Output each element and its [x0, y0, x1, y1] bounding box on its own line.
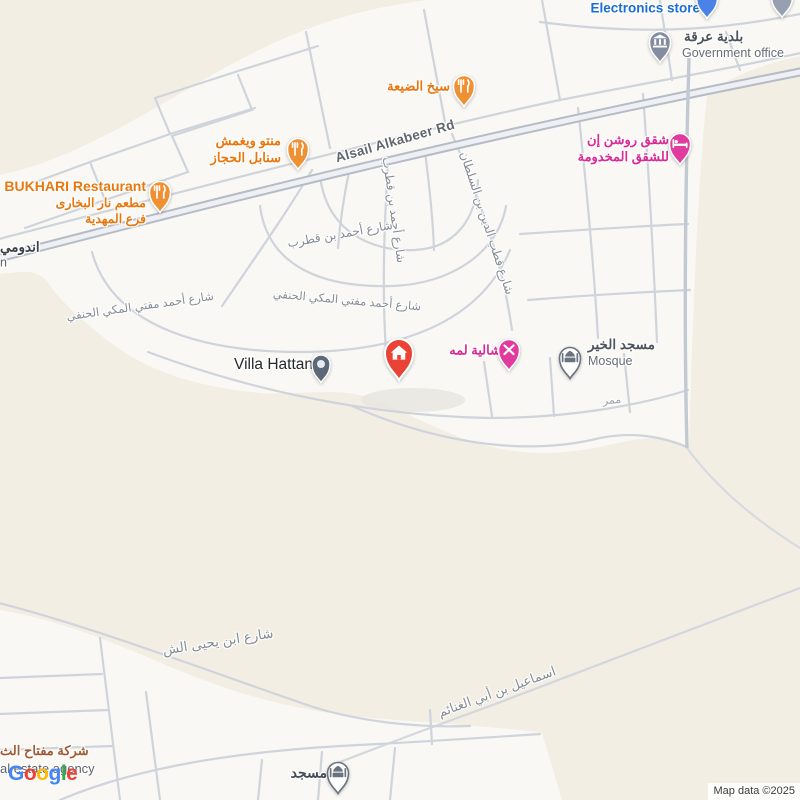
google-logo-letter: G — [8, 762, 24, 786]
google-logo-letter: o — [36, 762, 48, 786]
poi-label-villa-hattan[interactable]: Villa Hattan — [234, 356, 313, 374]
restaurant-pin-manto[interactable] — [283, 134, 313, 172]
google-logo-letter: g — [49, 762, 61, 786]
mosque-pin-khair[interactable] — [555, 343, 585, 381]
government-pin[interactable] — [645, 27, 675, 65]
road-label-mamarr: ممر — [602, 393, 621, 407]
poi-label-mosque-khair-subtitle: Mosque — [588, 353, 632, 369]
map-canvas[interactable]: Alsail Alkabeer Rd شارع أحمد بن قطرب شار… — [0, 0, 800, 800]
map-attribution: Map data ©2025 — [708, 783, 800, 800]
poi-label-manto[interactable]: منتو ويغمش سنابل الحجاز — [211, 132, 281, 166]
cutoff-gray-pin[interactable] — [767, 0, 797, 20]
poi-label-andomi-name: اندومي — [0, 240, 40, 256]
poi-label-bukhari-name: BUKHARI Restaurant — [4, 177, 146, 195]
poi-label-roshan-line2: للشقق المخدومة — [578, 148, 669, 165]
map-terrain — [0, 0, 800, 800]
restaurant-pin-bukhari[interactable] — [145, 177, 175, 215]
poi-label-manto-line2: سنابل الحجاز — [211, 149, 281, 166]
poi-label-roshan-line1: شقق روشن إن — [578, 131, 669, 148]
poi-label-manto-line1: منتو ويغمش — [211, 132, 281, 149]
poi-label-bukhari-line2: فرع المهدية — [4, 211, 146, 227]
restaurant-pin-sikh[interactable] — [449, 71, 479, 109]
google-logo: Google — [8, 762, 77, 786]
google-logo-letter: o — [24, 762, 36, 786]
lodging-pin-roshan[interactable] — [665, 129, 695, 167]
poi-label-sikh-aldiaa[interactable]: سيخ الضيعة — [387, 78, 450, 95]
activity-pin-shaliya[interactable] — [494, 335, 524, 373]
red-property-pin[interactable] — [380, 335, 418, 383]
poi-label-mosque-khair-name[interactable]: مسجد الخير — [588, 337, 655, 353]
mosque-pin-south[interactable] — [323, 758, 353, 796]
poi-label-government-subtitle: Government office — [682, 45, 784, 61]
poi-label-mosque-south[interactable]: مسجد — [291, 765, 327, 782]
poi-label-roshan[interactable]: شقق روشن إن للشقق المخدومة — [578, 131, 669, 165]
poi-label-bukhari[interactable]: BUKHARI Restaurant مطعم نار البخاری فرع … — [4, 177, 146, 227]
poi-label-bukhari-line1: مطعم نار البخاری — [4, 195, 146, 211]
villa-hattan-pin[interactable] — [308, 351, 334, 385]
dot-icon — [317, 360, 325, 368]
electronics-pin[interactable] — [692, 0, 722, 21]
poi-label-electronics-store[interactable]: Electronics store — [590, 1, 700, 16]
poi-label-andomi[interactable]: اندومي n — [0, 240, 40, 271]
poi-label-government-name[interactable]: بلدية عرقة — [684, 29, 743, 45]
poi-label-andomi-subtitle: n — [0, 256, 40, 271]
poi-label-realestate-line1: شركة مفتاح الث — [0, 742, 95, 760]
google-logo-letter: e — [66, 762, 77, 786]
